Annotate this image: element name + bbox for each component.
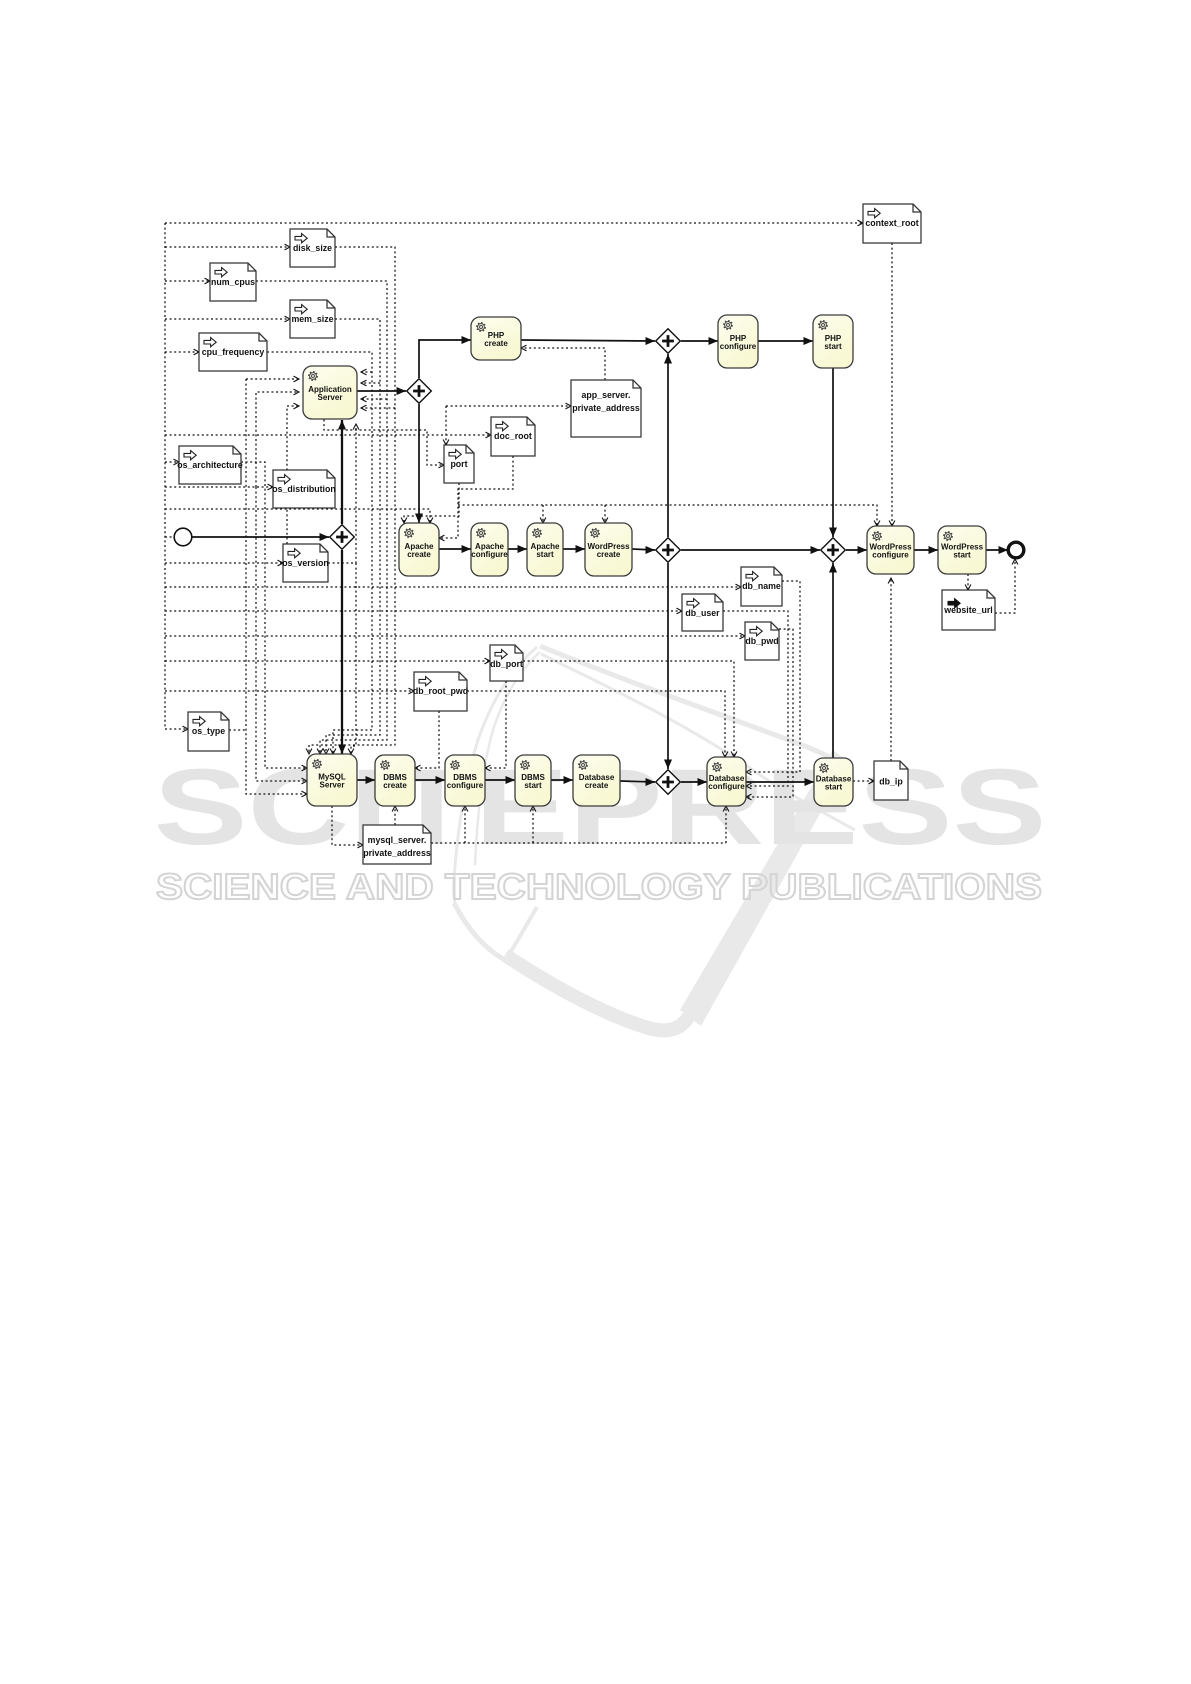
svg-text:private_address: private_address bbox=[363, 848, 431, 858]
svg-text:configure: configure bbox=[708, 782, 745, 791]
svg-text:website_url: website_url bbox=[943, 605, 992, 615]
svg-text:db_name: db_name bbox=[742, 581, 781, 591]
svg-text:context_root: context_root bbox=[865, 218, 918, 228]
svg-text:mem_size: mem_size bbox=[291, 314, 333, 324]
svg-text:create: create bbox=[383, 781, 407, 790]
svg-text:create: create bbox=[407, 550, 431, 559]
svg-text:db_ip: db_ip bbox=[879, 777, 903, 787]
svg-text:private_address: private_address bbox=[572, 403, 640, 413]
svg-text:configure: configure bbox=[447, 781, 484, 790]
svg-text:db_root_pwd: db_root_pwd bbox=[413, 686, 468, 696]
svg-text:mysql_server.: mysql_server. bbox=[368, 835, 427, 845]
svg-text:db_port: db_port bbox=[490, 659, 523, 669]
svg-text:configure: configure bbox=[471, 550, 508, 559]
svg-text:create: create bbox=[484, 339, 508, 348]
svg-text:SCIENCE AND TECHNOLOGY PUBLICA: SCIENCE AND TECHNOLOGY PUBLICATIONS bbox=[156, 866, 1042, 907]
svg-text:configure: configure bbox=[872, 550, 909, 559]
svg-text:create: create bbox=[597, 550, 621, 559]
svg-text:app_server.: app_server. bbox=[582, 390, 631, 400]
svg-text:db_pwd: db_pwd bbox=[745, 636, 778, 646]
svg-text:disk_size: disk_size bbox=[293, 243, 332, 253]
svg-text:start: start bbox=[825, 782, 843, 791]
svg-text:start: start bbox=[524, 781, 542, 790]
svg-text:port: port bbox=[450, 459, 467, 469]
svg-text:cpu_frequency: cpu_frequency bbox=[202, 347, 265, 357]
svg-text:os_architecture: os_architecture bbox=[177, 460, 243, 470]
svg-text:db_user: db_user bbox=[685, 608, 720, 618]
svg-text:num_cpus: num_cpus bbox=[211, 277, 255, 287]
svg-text:start: start bbox=[953, 550, 971, 559]
svg-text:start: start bbox=[824, 342, 842, 351]
svg-text:configure: configure bbox=[720, 342, 757, 351]
svg-text:doc_root: doc_root bbox=[494, 431, 532, 441]
svg-text:os_type: os_type bbox=[192, 726, 225, 736]
svg-text:Server: Server bbox=[320, 780, 345, 789]
svg-text:create: create bbox=[585, 781, 609, 790]
svg-text:os_version: os_version bbox=[282, 558, 328, 568]
svg-text:os_distribution: os_distribution bbox=[272, 484, 336, 494]
svg-text:start: start bbox=[536, 550, 554, 559]
svg-text:Server: Server bbox=[318, 393, 343, 402]
